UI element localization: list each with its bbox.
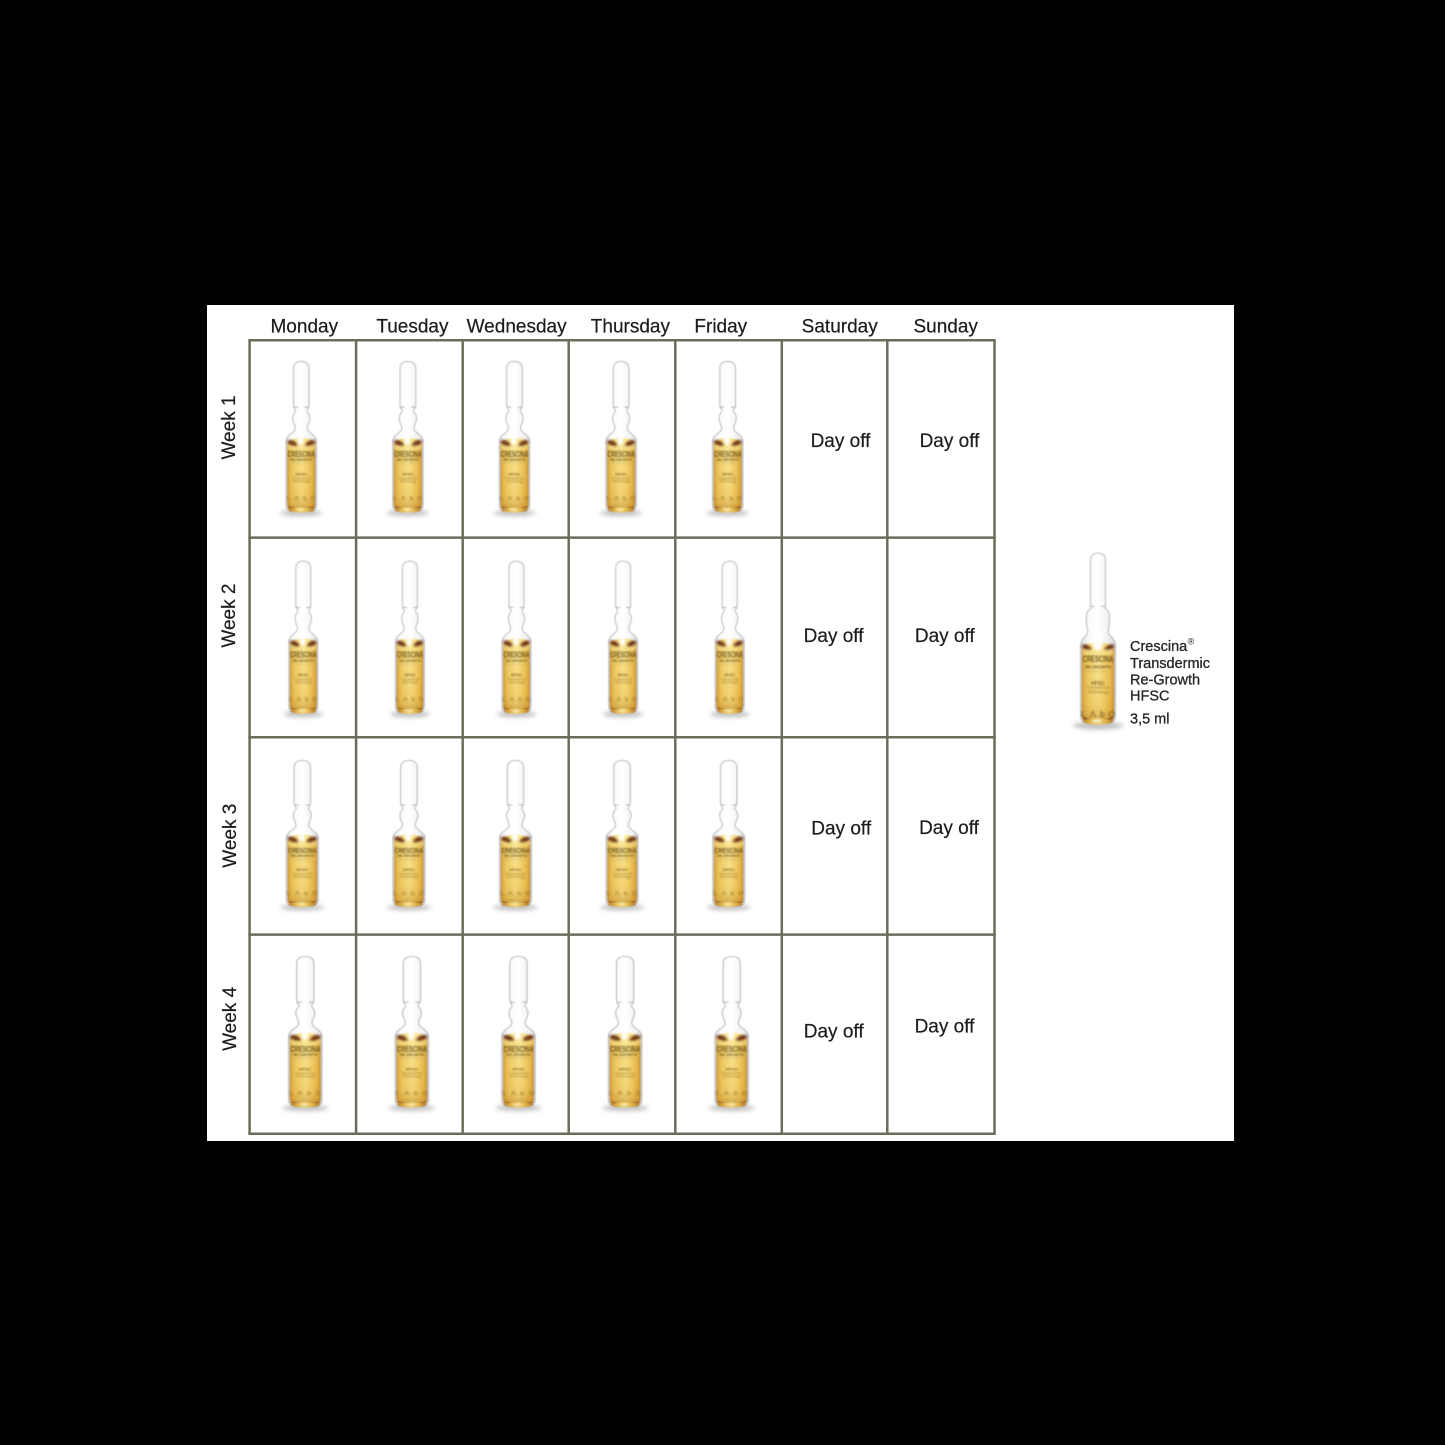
svg-text:Week 3: Week 3 xyxy=(220,804,241,868)
svg-text:Sunday: Sunday xyxy=(913,316,978,337)
svg-text:Wednesday: Wednesday xyxy=(467,316,567,337)
svg-text:Day off: Day off xyxy=(811,818,872,839)
svg-text:Re-Growth: Re-Growth xyxy=(1130,673,1200,689)
svg-text:Week 1: Week 1 xyxy=(219,395,240,459)
svg-text:Day off: Day off xyxy=(915,1016,976,1037)
svg-text:Day off: Day off xyxy=(804,1021,865,1042)
svg-text:Crescina: Crescina xyxy=(1130,639,1188,655)
svg-text:Thursday: Thursday xyxy=(591,316,671,337)
svg-text:Week 2: Week 2 xyxy=(219,584,240,648)
svg-text:3,5 ml: 3,5 ml xyxy=(1130,712,1170,728)
svg-text:Day off: Day off xyxy=(804,626,865,647)
svg-text:Day off: Day off xyxy=(920,431,981,452)
svg-text:Day off: Day off xyxy=(919,818,980,839)
svg-text:Day off: Day off xyxy=(811,431,872,452)
svg-text:Week 4: Week 4 xyxy=(220,986,241,1051)
svg-text:Tuesday: Tuesday xyxy=(376,316,449,337)
svg-text:Saturday: Saturday xyxy=(802,316,879,337)
svg-text:Day off: Day off xyxy=(915,626,976,647)
svg-text:Monday: Monday xyxy=(270,316,338,337)
svg-text:Transdermic: Transdermic xyxy=(1130,656,1210,672)
svg-text:Friday: Friday xyxy=(694,316,747,337)
svg-text:®: ® xyxy=(1188,637,1195,647)
svg-text:HFSC: HFSC xyxy=(1130,689,1169,705)
